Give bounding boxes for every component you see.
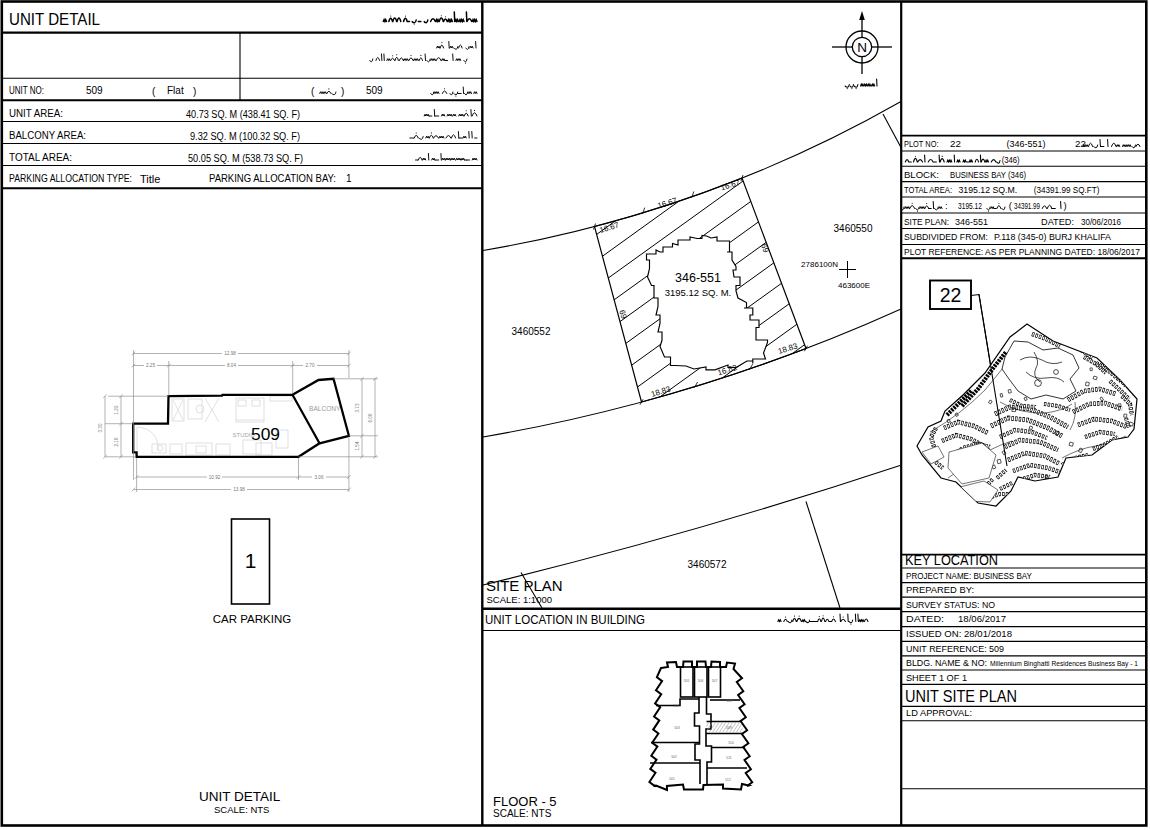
svg-text:2.16: 2.16 <box>114 437 119 446</box>
svg-text:509: 509 <box>251 424 280 444</box>
svg-text:UNIT NO:: UNIT NO: <box>9 85 44 96</box>
svg-text:22: 22 <box>1075 138 1086 149</box>
svg-text:22: 22 <box>950 138 961 149</box>
svg-text:501: 501 <box>669 777 675 781</box>
svg-text:TOTAL AREA:: TOTAL AREA: <box>9 152 72 163</box>
svg-text:SCALE: 1:1000: SCALE: 1:1000 <box>487 594 553 605</box>
svg-text:508: 508 <box>726 699 732 703</box>
svg-text:(34391.99 SQ.FT): (34391.99 SQ.FT) <box>1034 184 1100 195</box>
svg-text:511: 511 <box>726 756 731 760</box>
svg-text:ISSUED ON: 28/01/2018: ISSUED ON: 28/01/2018 <box>906 628 1013 639</box>
svg-text:BLDG. NAME & NO:: BLDG. NAME & NO: <box>906 657 987 668</box>
svg-text:503: 503 <box>674 726 680 730</box>
svg-text:SITE PLAN:: SITE PLAN: <box>904 216 949 227</box>
svg-text:UNIT AREA:: UNIT AREA: <box>9 108 63 119</box>
svg-text:N: N <box>857 40 867 55</box>
svg-text:BLOCK:: BLOCK: <box>904 169 939 180</box>
svg-text:SURVEY STATUS: NO: SURVEY STATUS: NO <box>906 599 995 610</box>
svg-text:(346-551): (346-551) <box>1007 138 1046 149</box>
svg-text:PROJECT NAME: BUSINESS BAY: PROJECT NAME: BUSINESS BAY <box>906 570 1032 581</box>
svg-text:LD APPROVAL:: LD APPROVAL: <box>906 707 972 718</box>
svg-text:CAR PARKING: CAR PARKING <box>213 613 291 625</box>
svg-text:3195.12 SQ. M.: 3195.12 SQ. M. <box>665 287 732 298</box>
svg-text:2.70: 2.70 <box>306 363 315 368</box>
svg-text:3460552: 3460552 <box>512 326 551 337</box>
svg-text:): ) <box>1064 200 1067 211</box>
svg-text:(346): (346) <box>1002 154 1020 165</box>
svg-text:509: 509 <box>86 85 103 96</box>
svg-text:505: 505 <box>684 679 690 683</box>
svg-text:1: 1 <box>346 173 352 184</box>
svg-text:): ) <box>193 86 196 97</box>
svg-text:30/06/2016: 30/06/2016 <box>1081 216 1121 227</box>
svg-text:3460572: 3460572 <box>688 559 727 570</box>
svg-text::: : <box>945 200 948 211</box>
svg-text:TOTAL AREA:: TOTAL AREA: <box>904 184 952 195</box>
svg-text:10.92: 10.92 <box>209 475 221 480</box>
svg-text:Title: Title <box>140 173 160 185</box>
svg-text:SHEET 1 OF 1: SHEET 1 OF 1 <box>906 672 967 683</box>
svg-text:1.29: 1.29 <box>114 405 119 414</box>
svg-text:SITE PLAN: SITE PLAN <box>486 577 563 594</box>
svg-text:9.32 SQ. M (100.32 SQ. F): 9.32 SQ. M (100.32 SQ. F) <box>190 131 300 142</box>
svg-text:PARKING ALLOCATION TYPE:: PARKING ALLOCATION TYPE: <box>9 173 132 184</box>
svg-text:3195.12 SQ.M.: 3195.12 SQ.M. <box>959 184 1018 195</box>
svg-text:3.73: 3.73 <box>355 403 360 412</box>
svg-text:SUBDIVIDED FROM:: SUBDIVIDED FROM: <box>904 231 988 242</box>
svg-text:P.118 (345-0) BURJ KHALIFA: P.118 (345-0) BURJ KHALIFA <box>994 231 1111 242</box>
svg-text:509: 509 <box>726 726 732 730</box>
svg-text:UNIT LOCATION IN BUILDING: UNIT LOCATION IN BUILDING <box>485 612 645 627</box>
svg-text:SCALE: NTS: SCALE: NTS <box>214 804 269 815</box>
svg-text:8.04: 8.04 <box>227 363 236 368</box>
svg-text:1.54: 1.54 <box>355 441 360 450</box>
svg-text:12.98: 12.98 <box>224 351 236 356</box>
svg-text:3.06: 3.06 <box>315 475 324 480</box>
svg-text:346-551: 346-551 <box>675 271 721 285</box>
svg-text:6.06: 6.06 <box>368 413 373 422</box>
svg-text:506: 506 <box>698 679 704 683</box>
svg-text:3460550: 3460550 <box>834 223 873 234</box>
svg-text:18/06/2017: 18/06/2017 <box>958 613 1006 624</box>
svg-text:PLOT NO:: PLOT NO: <box>904 138 939 149</box>
svg-text:34391.99: 34391.99 <box>1014 201 1040 211</box>
svg-text:UNIT SITE PLAN: UNIT SITE PLAN <box>905 687 1017 706</box>
svg-text:UNIT DETAIL: UNIT DETAIL <box>199 789 281 804</box>
svg-text:512: 512 <box>725 778 731 782</box>
svg-text:UNIT DETAIL: UNIT DETAIL <box>9 11 100 28</box>
svg-text:DATED:: DATED: <box>906 613 944 624</box>
svg-text:PARKING ALLOCATION BAY:: PARKING ALLOCATION BAY: <box>209 173 336 184</box>
svg-text:504: 504 <box>673 704 679 708</box>
svg-text:346-551: 346-551 <box>955 216 988 227</box>
svg-text:UNIT REFERENCE: 509: UNIT REFERENCE: 509 <box>906 643 1004 654</box>
svg-text:2.25: 2.25 <box>146 363 155 368</box>
svg-text:1: 1 <box>245 549 257 572</box>
svg-text:510: 510 <box>728 741 734 745</box>
svg-text:463600E: 463600E <box>838 281 870 290</box>
svg-text:50.05 SQ. M (538.73 SQ. F): 50.05 SQ. M (538.73 SQ. F) <box>188 153 303 164</box>
svg-text:3195.12: 3195.12 <box>958 201 982 211</box>
svg-text:3.30: 3.30 <box>98 423 103 432</box>
svg-text:): ) <box>341 86 344 97</box>
svg-text:507: 507 <box>712 679 718 683</box>
svg-text:BALCONY AREA:: BALCONY AREA: <box>9 130 86 141</box>
svg-text:2786100N: 2786100N <box>801 260 838 269</box>
svg-text:Flat: Flat <box>167 85 184 96</box>
svg-text:SCALE: NTS: SCALE: NTS <box>493 808 552 819</box>
svg-text:22: 22 <box>940 284 962 306</box>
svg-text:BALCONY: BALCONY <box>309 405 341 412</box>
svg-text:KEY LOCATION: KEY LOCATION <box>905 551 998 568</box>
svg-text:509: 509 <box>366 85 383 96</box>
svg-text:DATED:: DATED: <box>1041 216 1074 227</box>
svg-text:BUSINESS BAY (346): BUSINESS BAY (346) <box>950 169 1026 180</box>
svg-text:PLOT REFERENCE: AS PER PLANNIN: PLOT REFERENCE: AS PER PLANNING DATED: 1… <box>904 246 1140 257</box>
svg-text:13.98: 13.98 <box>233 487 245 492</box>
svg-text:PREPARED BY:: PREPARED BY: <box>906 584 974 595</box>
svg-text:502: 502 <box>671 755 677 759</box>
svg-text:40.73 SQ. M (438.41 SQ. F): 40.73 SQ. M (438.41 SQ. F) <box>186 109 300 120</box>
svg-text:Millennium Binghatti Residence: Millennium Binghatti Residences Business… <box>990 659 1138 668</box>
